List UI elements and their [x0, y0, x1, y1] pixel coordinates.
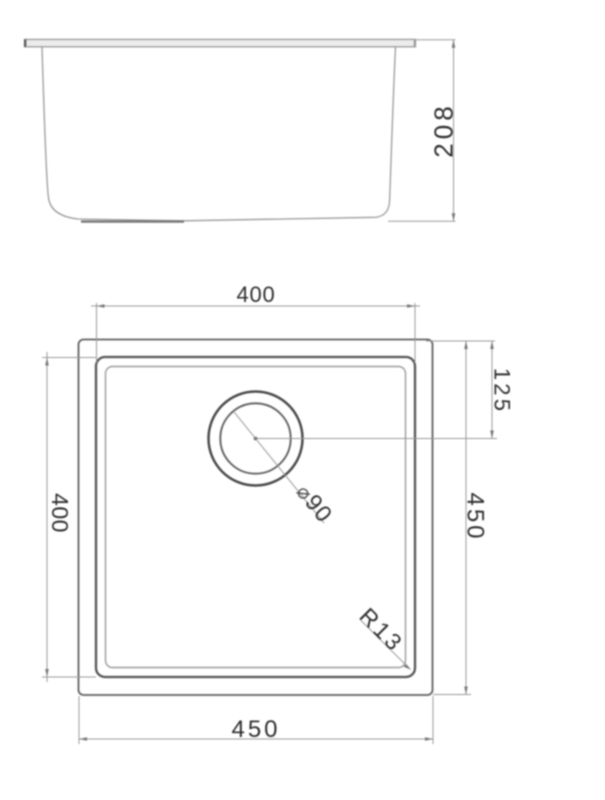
svg-text:208: 208 [429, 102, 459, 157]
svg-text:400: 400 [47, 493, 73, 533]
svg-text:R13: R13 [354, 603, 409, 658]
svg-text:450: 450 [231, 716, 280, 743]
svg-text:⌀90: ⌀90 [292, 479, 339, 528]
svg-text:400: 400 [236, 282, 275, 307]
svg-text:450: 450 [462, 492, 489, 541]
svg-text:125: 125 [490, 368, 515, 414]
